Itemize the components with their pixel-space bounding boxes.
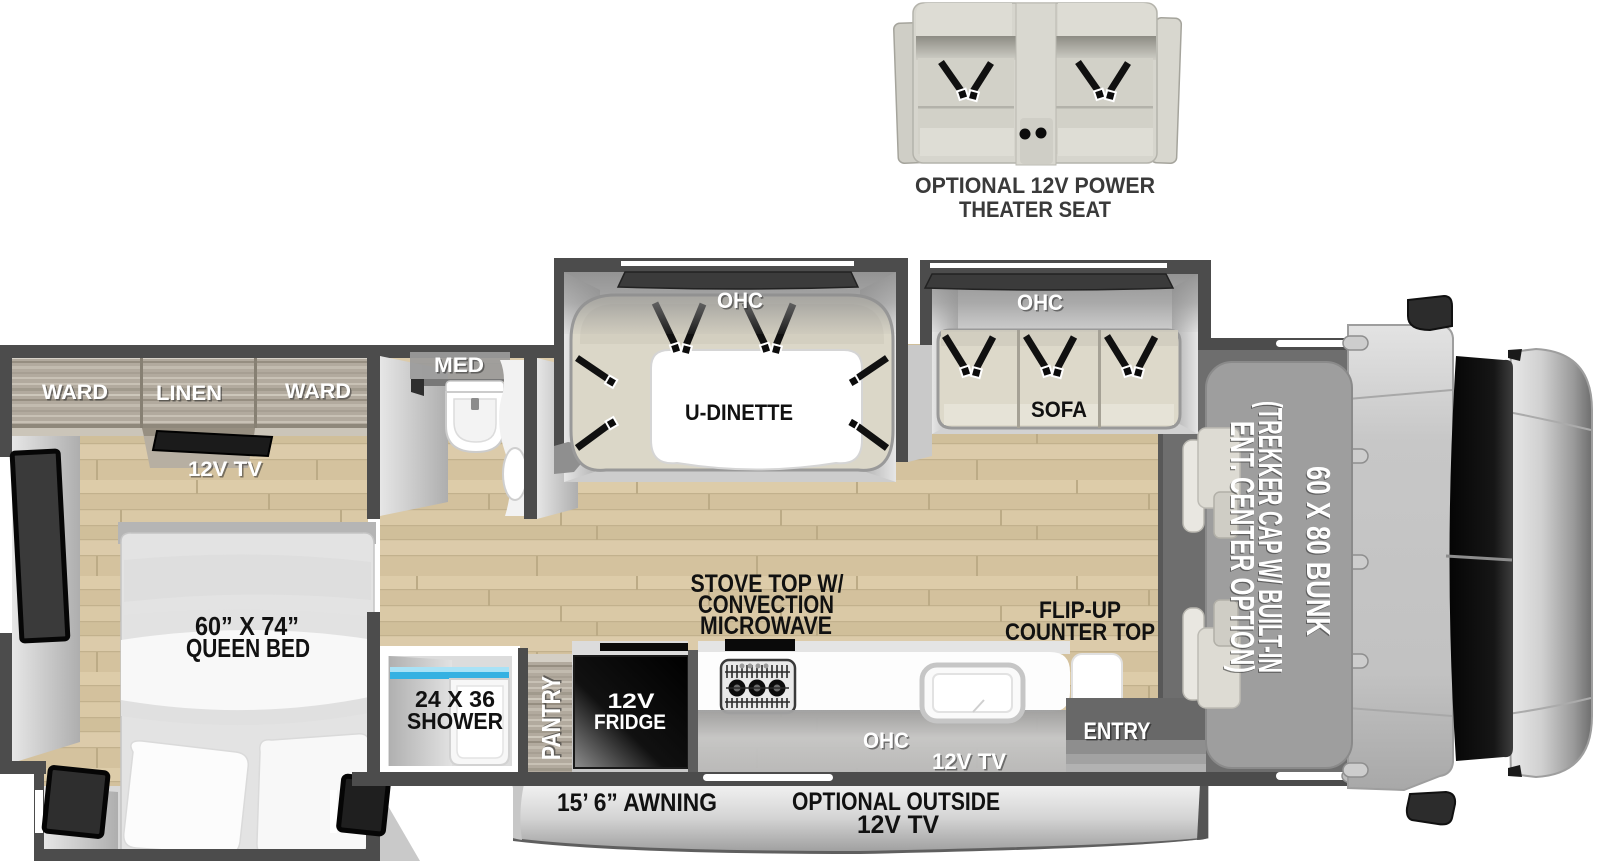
- svg-text:PANTRY: PANTRY: [536, 676, 566, 760]
- svg-text:12V TV: 12V TV: [932, 749, 1006, 774]
- svg-text:COUNTER TOP: COUNTER TOP: [1005, 619, 1155, 646]
- svg-text:LINEN: LINEN: [156, 382, 222, 405]
- svg-text:FRIDGE: FRIDGE: [594, 711, 666, 734]
- svg-text:ENTRY: ENTRY: [1084, 718, 1151, 745]
- svg-text:SOFA: SOFA: [1031, 397, 1087, 422]
- svg-text:OPTIONAL 12V POWER: OPTIONAL 12V POWER: [915, 173, 1155, 198]
- svg-text:MICROWAVE: MICROWAVE: [700, 612, 832, 640]
- svg-text:QUEEN BED: QUEEN BED: [186, 633, 310, 663]
- svg-text:THEATER SEAT: THEATER SEAT: [959, 197, 1112, 222]
- svg-text:12V TV: 12V TV: [857, 811, 939, 839]
- svg-text:12V TV: 12V TV: [188, 458, 262, 481]
- svg-text:12V: 12V: [608, 690, 655, 713]
- svg-text:WARD: WARD: [42, 381, 108, 404]
- svg-text:OHC: OHC: [717, 288, 763, 313]
- svg-text:OHC: OHC: [1017, 290, 1063, 315]
- svg-text:ENT. CENTER OPTION): ENT. CENTER OPTION): [1224, 421, 1261, 673]
- svg-text:U-DINETTE: U-DINETTE: [685, 400, 793, 425]
- svg-text:SHOWER: SHOWER: [407, 708, 503, 734]
- svg-text:WARD: WARD: [285, 380, 351, 403]
- svg-text:15’ 6” AWNING: 15’ 6” AWNING: [557, 789, 717, 817]
- svg-text:60 X 80 BUNK: 60 X 80 BUNK: [1300, 466, 1337, 636]
- svg-text:MED: MED: [434, 354, 484, 377]
- svg-text:OHC: OHC: [863, 728, 909, 753]
